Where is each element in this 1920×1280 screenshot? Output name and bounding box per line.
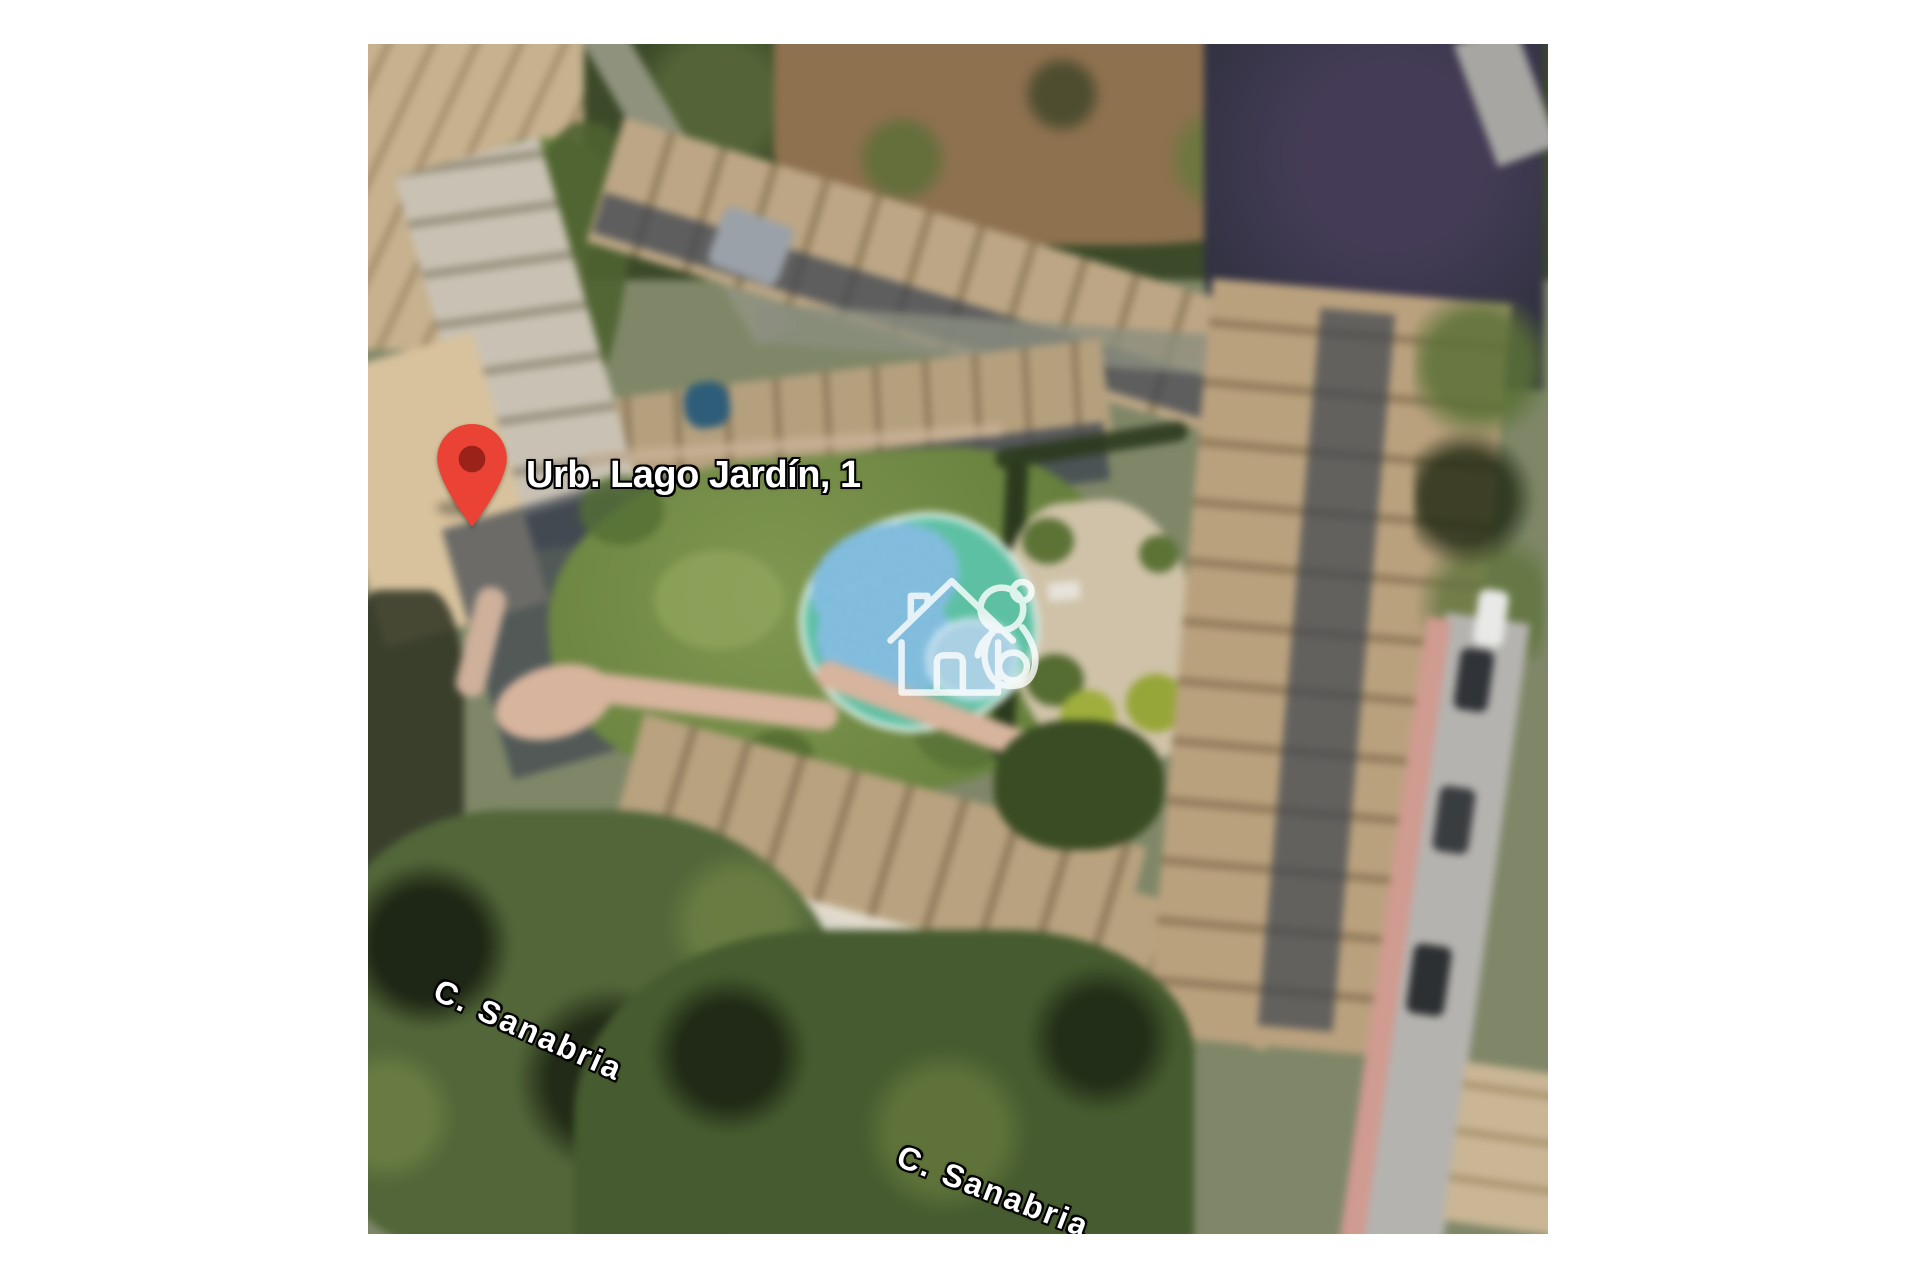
trees-bottom-center <box>574 930 1194 1234</box>
pin-dot <box>459 446 486 473</box>
trees-garden-bottom <box>994 720 1164 850</box>
watermark-house-icon <box>883 564 1078 704</box>
marker-label: Urb. Lago Jardín, 1 <box>526 454 861 497</box>
page: Urb. Lago Jardín, 1 C. Sanabria C. Sanab… <box>0 0 1920 1280</box>
pin-body <box>437 424 507 527</box>
bush <box>1139 535 1179 573</box>
satellite-map[interactable]: Urb. Lago Jardín, 1 C. Sanabria C. Sanab… <box>368 44 1548 1234</box>
bush <box>1022 518 1074 564</box>
lawn-patch <box>654 550 784 650</box>
map-pin-icon[interactable] <box>433 420 511 532</box>
